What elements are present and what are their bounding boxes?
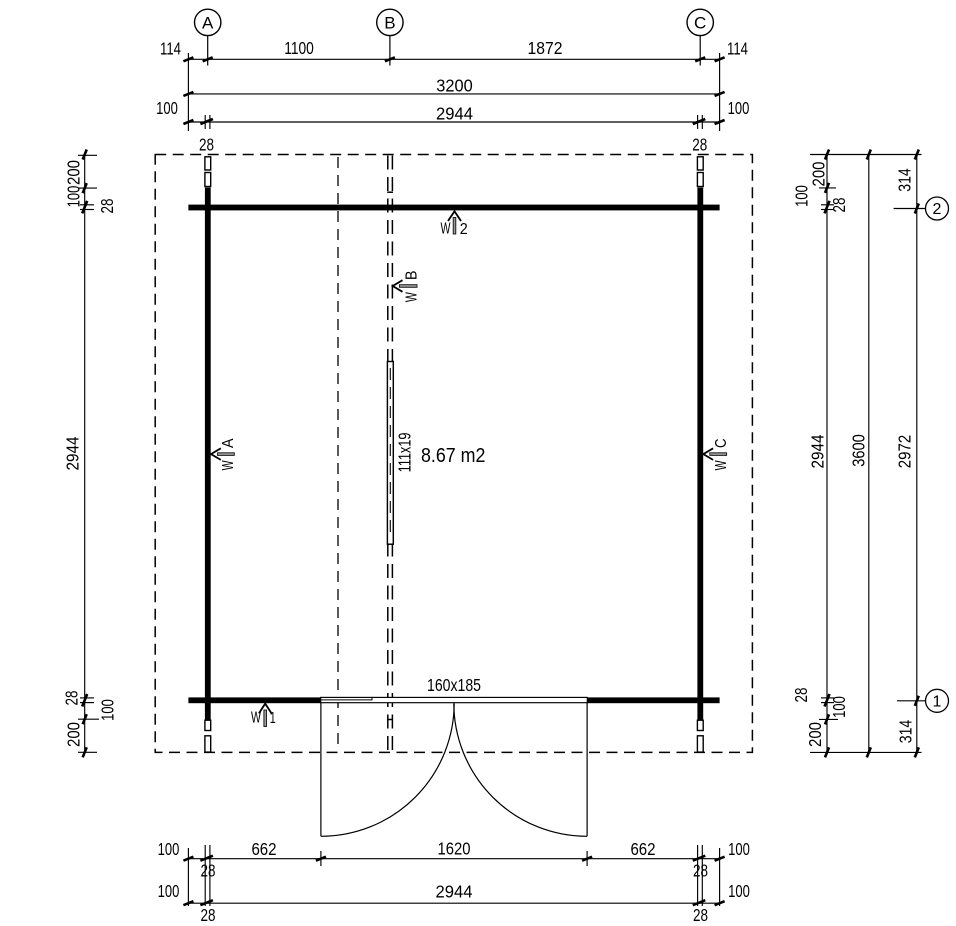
svg-text:8.67 m2: 8.67 m2 xyxy=(421,444,485,467)
svg-text:C: C xyxy=(713,438,730,448)
svg-text:28: 28 xyxy=(62,691,82,706)
svg-text:1620: 1620 xyxy=(438,839,471,859)
svg-text:28: 28 xyxy=(693,905,708,925)
svg-text:W: W xyxy=(441,220,452,237)
svg-text:100: 100 xyxy=(98,699,118,721)
svg-text:314: 314 xyxy=(895,168,915,192)
svg-text:28: 28 xyxy=(199,135,214,155)
svg-text:100: 100 xyxy=(728,839,750,859)
svg-text:28: 28 xyxy=(829,198,849,213)
svg-text:1872: 1872 xyxy=(528,38,563,58)
svg-text:3200: 3200 xyxy=(436,76,473,96)
svg-text:100: 100 xyxy=(156,98,178,118)
svg-text:3600: 3600 xyxy=(849,434,869,467)
svg-text:2: 2 xyxy=(933,201,942,218)
svg-text:100: 100 xyxy=(728,98,750,118)
svg-text:2944: 2944 xyxy=(808,434,828,468)
svg-text:28: 28 xyxy=(693,861,708,881)
svg-text:314: 314 xyxy=(896,720,916,744)
svg-text:200: 200 xyxy=(64,160,84,185)
svg-text:B: B xyxy=(403,270,420,280)
svg-text:2944: 2944 xyxy=(63,436,83,470)
svg-text:28: 28 xyxy=(791,688,811,703)
svg-text:100: 100 xyxy=(64,185,84,207)
svg-text:114: 114 xyxy=(727,39,748,59)
svg-text:W: W xyxy=(713,460,730,471)
svg-text:B: B xyxy=(384,13,395,32)
svg-text:28: 28 xyxy=(692,135,707,155)
svg-text:1100: 1100 xyxy=(284,38,314,58)
svg-text:28: 28 xyxy=(201,905,216,925)
svg-text:100: 100 xyxy=(792,185,812,207)
svg-text:W: W xyxy=(220,460,237,471)
svg-text:W: W xyxy=(251,710,262,727)
svg-text:100: 100 xyxy=(158,839,180,859)
svg-text:C: C xyxy=(694,13,706,32)
svg-text:100: 100 xyxy=(158,881,180,901)
svg-text:2972: 2972 xyxy=(895,435,915,468)
svg-text:A: A xyxy=(202,13,214,32)
svg-text:A: A xyxy=(220,438,237,448)
svg-text:2944: 2944 xyxy=(436,104,473,124)
svg-text:200: 200 xyxy=(809,161,829,186)
svg-text:28: 28 xyxy=(97,199,117,214)
svg-text:200: 200 xyxy=(64,722,84,747)
svg-text:100: 100 xyxy=(829,696,849,718)
svg-text:1: 1 xyxy=(933,693,942,710)
svg-text:1: 1 xyxy=(270,710,276,727)
svg-text:111x19: 111x19 xyxy=(395,433,415,473)
svg-text:2944: 2944 xyxy=(436,882,473,902)
svg-text:2: 2 xyxy=(460,221,468,238)
svg-text:200: 200 xyxy=(805,722,825,747)
svg-text:114: 114 xyxy=(160,39,181,59)
svg-text:662: 662 xyxy=(630,839,655,859)
svg-text:160x185: 160x185 xyxy=(427,675,481,695)
svg-text:662: 662 xyxy=(251,839,276,859)
svg-text:28: 28 xyxy=(201,861,216,881)
svg-text:W: W xyxy=(403,292,420,303)
svg-text:100: 100 xyxy=(728,881,750,901)
